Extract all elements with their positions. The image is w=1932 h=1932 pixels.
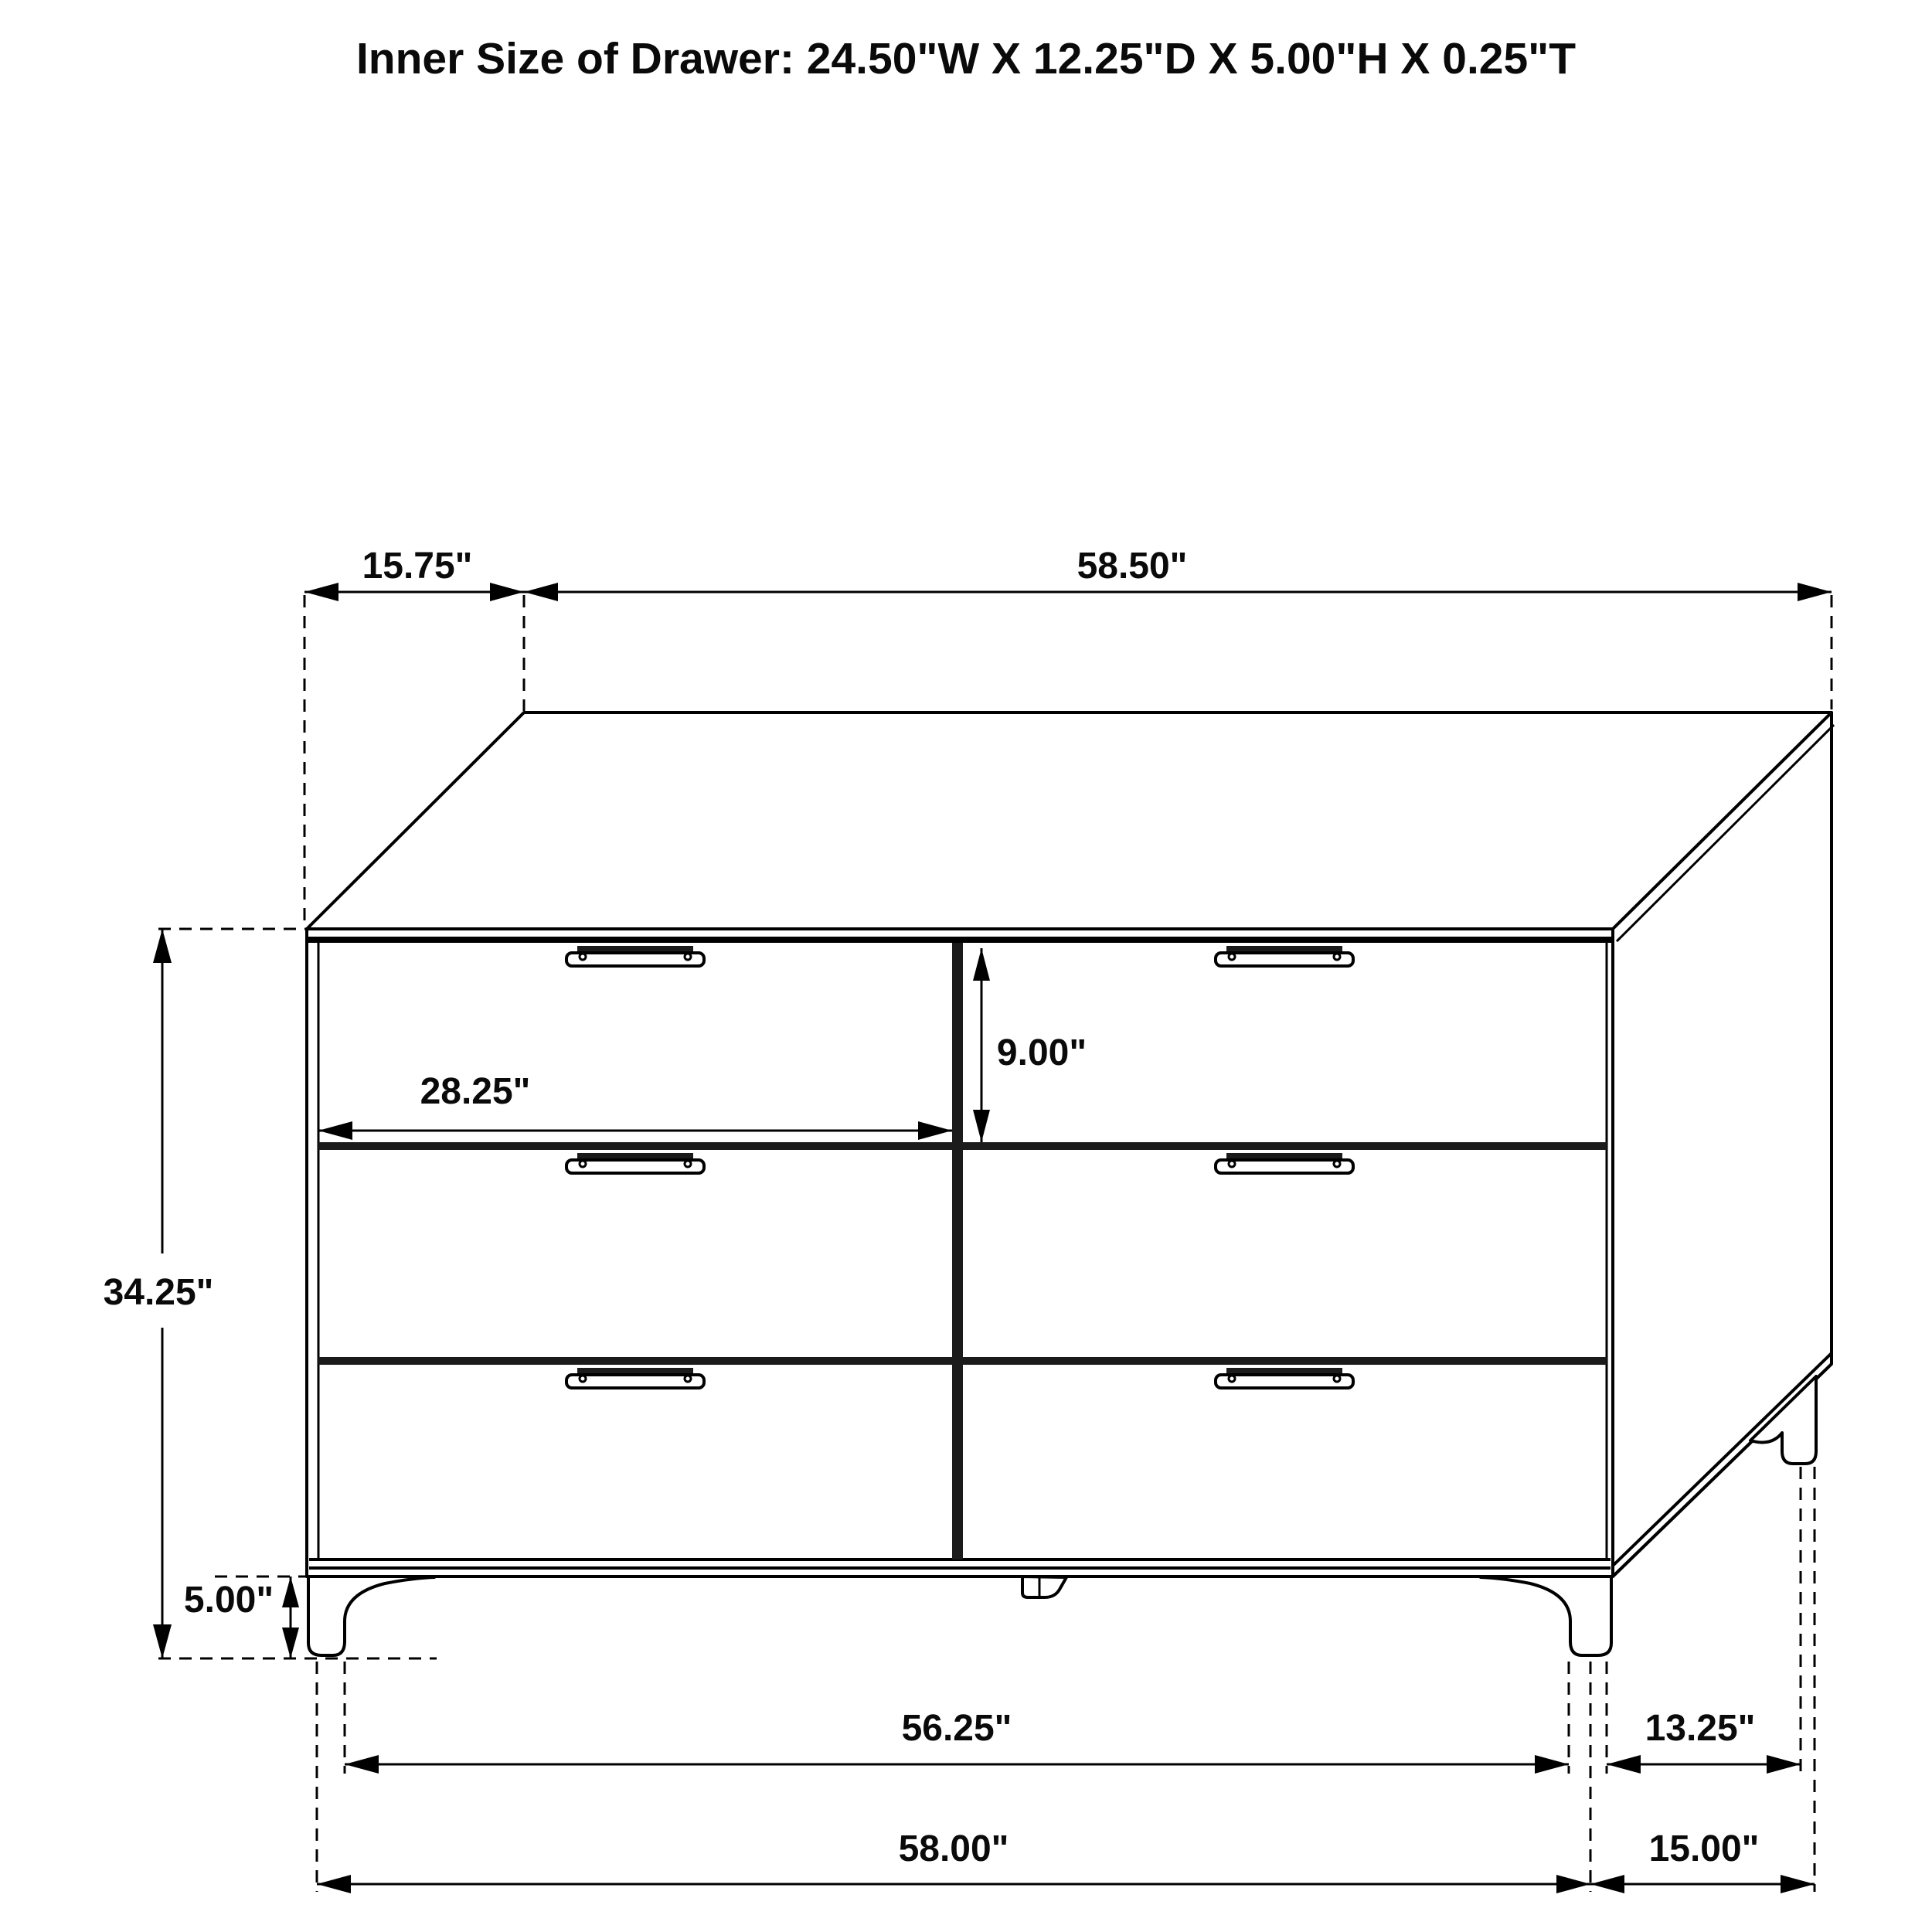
drawer-column-divider [952, 943, 963, 1560]
dimension-base-depth: 15.00" [1590, 1828, 1815, 1893]
dimension-base-width: 58.00" [317, 1828, 1590, 1893]
dresser-top-face [307, 713, 1832, 929]
drawer-handle [566, 1368, 704, 1388]
diagram-title: Inner Size of Drawer: 24.50"W X 12.25"D … [356, 34, 1576, 83]
dimension-overall-height: 34.25" [104, 929, 214, 1658]
dimension-label-base-depth: 15.00" [1649, 1828, 1760, 1869]
dimension-label-top-width: 58.50" [1077, 546, 1188, 587]
dimension-label-top-depth: 15.75" [362, 546, 473, 587]
dimension-label-drawer-width: 28.25" [420, 1071, 531, 1112]
front-right-leg [1481, 1577, 1611, 1655]
center-support-stub [1022, 1577, 1066, 1597]
drawer-handle [566, 946, 704, 966]
drawer-handle [1216, 946, 1353, 966]
dimension-front-feet-span: 56.25" [345, 1708, 1569, 1774]
dimension-label-overall-height: 34.25" [104, 1272, 214, 1313]
dimension-label-side-feet-span: 13.25" [1645, 1708, 1756, 1749]
drawer-handle [1216, 1368, 1353, 1388]
diagram-canvas: Inner Size of Drawer: 24.50"W X 12.25"D … [0, 0, 1932, 1932]
dresser-dimension-diagram: Inner Size of Drawer: 24.50"W X 12.25"D … [0, 0, 1932, 1932]
dimension-side-feet-span: 13.25" [1607, 1708, 1801, 1774]
dimension-label-drawer-height: 9.00" [997, 1032, 1087, 1073]
dimension-label-front-feet-span: 56.25" [902, 1708, 1012, 1749]
dimension-label-leg-height: 5.00" [184, 1580, 274, 1621]
dresser-drawing [307, 713, 1834, 1655]
drawer-handle [566, 1153, 704, 1173]
dimension-top-width: 58.50" [524, 546, 1832, 601]
dimension-leg-height: 5.00" [184, 1577, 299, 1658]
front-left-leg [308, 1577, 434, 1655]
dimension-label-base-width: 58.00" [899, 1828, 1009, 1869]
drawer-handle [1216, 1153, 1353, 1173]
dimension-top-depth: 15.75" [304, 546, 524, 601]
